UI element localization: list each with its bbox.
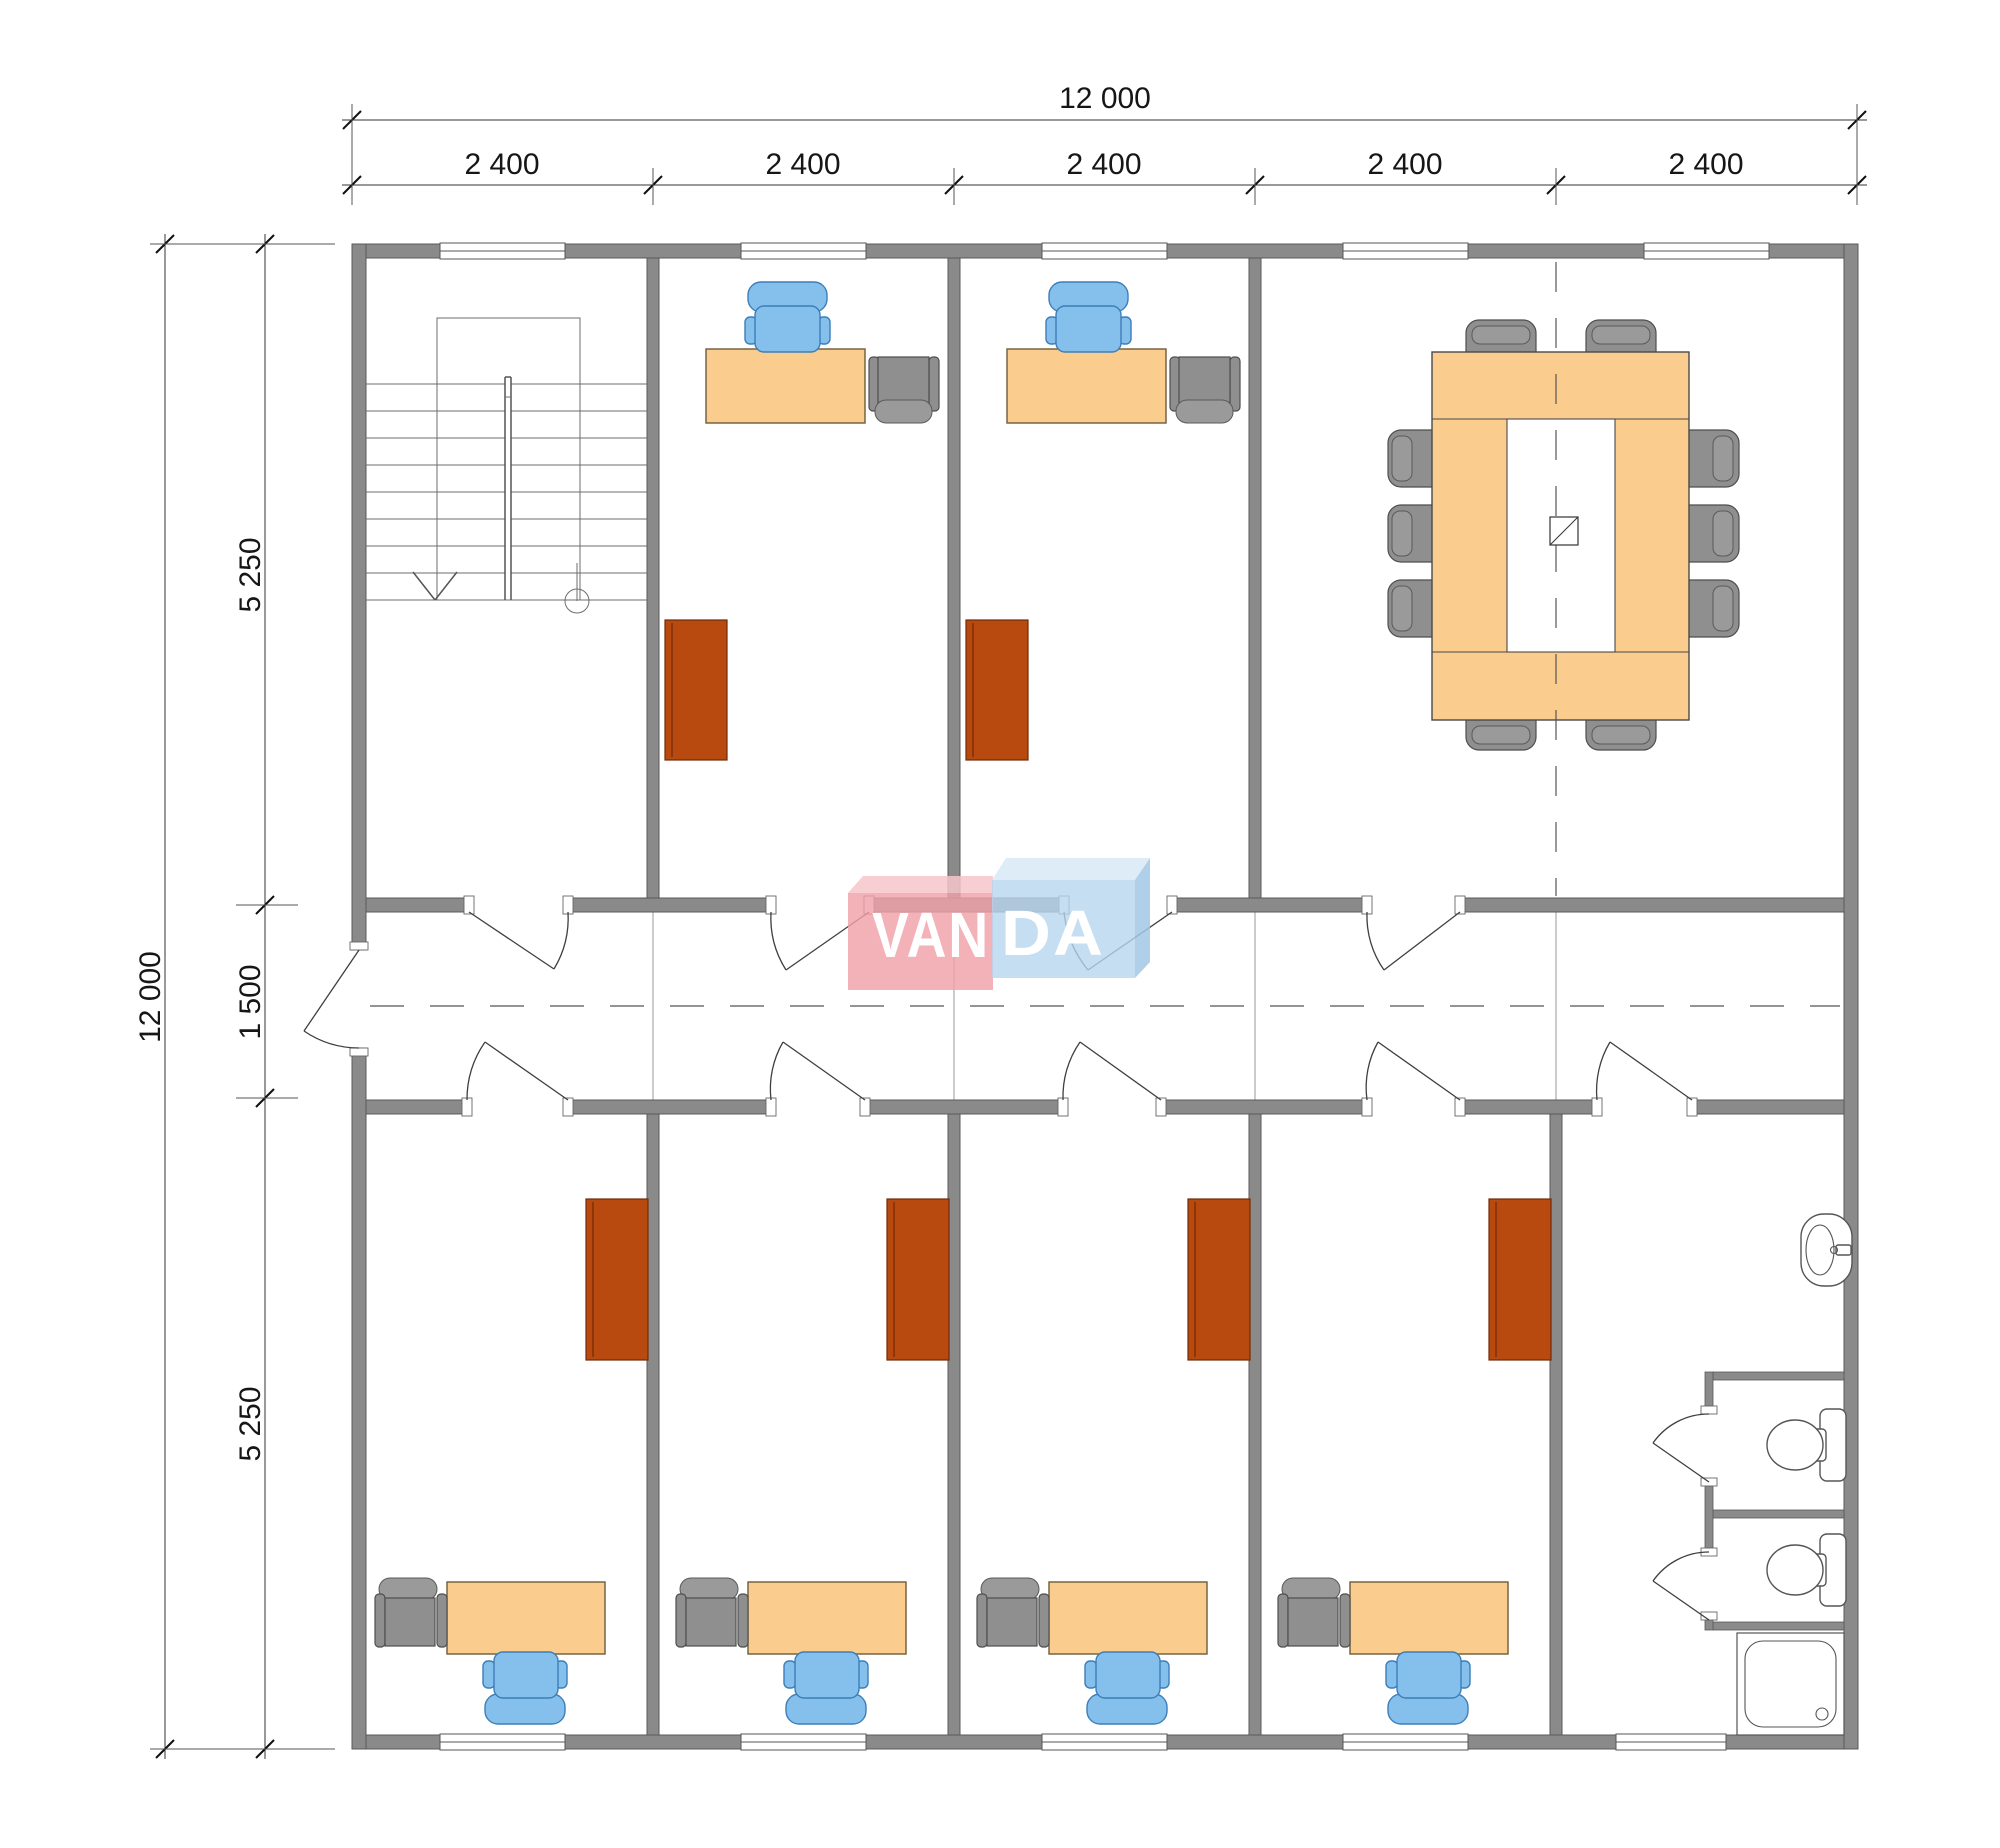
window xyxy=(440,1734,565,1750)
office-bottom-4 xyxy=(1278,1199,1551,1724)
guest-chair xyxy=(676,1578,748,1647)
desk-chair xyxy=(483,1652,567,1724)
wash-basin xyxy=(1801,1214,1852,1286)
stair-direction-arrow xyxy=(413,572,457,600)
meeting-room-door xyxy=(1362,896,1465,970)
staircase xyxy=(366,318,647,613)
window xyxy=(1644,243,1769,259)
desk-chair xyxy=(784,1652,868,1724)
guest-chair xyxy=(869,357,939,423)
guest-chair xyxy=(1278,1578,1350,1647)
desk-chair xyxy=(1085,1652,1169,1724)
stair-column-circle xyxy=(565,563,589,613)
entrance-door xyxy=(304,942,368,1056)
guest-chair xyxy=(977,1578,1049,1647)
office-top-2 xyxy=(966,282,1240,760)
dim-total-width-label: 12 000 xyxy=(1059,82,1151,115)
desk-chair xyxy=(1046,282,1131,352)
office-desk xyxy=(1007,349,1166,423)
cabinet xyxy=(1188,1199,1250,1360)
shower-tray xyxy=(1737,1633,1844,1735)
window xyxy=(1343,1734,1468,1750)
window xyxy=(1042,1734,1167,1750)
guest-chair xyxy=(1170,357,1240,423)
office-desk xyxy=(748,1582,906,1654)
guest-chair xyxy=(375,1578,447,1647)
dim-left-segment-label: 5 250 xyxy=(234,1386,267,1461)
window xyxy=(741,1734,866,1750)
office-bottom-3 xyxy=(977,1199,1250,1724)
office-desk xyxy=(706,349,865,423)
window xyxy=(440,243,565,259)
bathroom-door xyxy=(1592,1042,1697,1116)
stair-landing xyxy=(437,318,580,600)
office-door xyxy=(462,1042,573,1116)
dimension-left: 12 000 5 250 1 500 5 250 xyxy=(134,234,335,1759)
toilet xyxy=(1767,1409,1846,1481)
window xyxy=(1042,243,1167,259)
cabinet xyxy=(966,620,1028,760)
logo-text-da: DA xyxy=(1001,897,1105,969)
window xyxy=(741,243,866,259)
office-desk xyxy=(1350,1582,1508,1654)
cabinet xyxy=(586,1199,648,1360)
floor-plan-drawing: 12 000 2 400 2 400 2 400 2 400 2 400 12 … xyxy=(0,0,2000,1848)
dim-bay-label: 2 400 xyxy=(464,148,539,181)
floor-plan-page: 12 000 2 400 2 400 2 400 2 400 2 400 12 … xyxy=(0,0,2000,1848)
office-door xyxy=(1362,1042,1465,1116)
bathroom xyxy=(1653,1214,1852,1735)
dimension-top: 12 000 2 400 2 400 2 400 2 400 2 400 xyxy=(342,82,1867,205)
office-bottom-1 xyxy=(375,1199,648,1724)
cabinet xyxy=(1489,1199,1551,1360)
cabinet xyxy=(665,620,727,760)
dim-bay-label: 2 400 xyxy=(1066,148,1141,181)
dim-bay-label: 2 400 xyxy=(1668,148,1743,181)
stair-divider xyxy=(505,377,511,600)
office-bottom-2 xyxy=(676,1199,949,1724)
wc-stall-door xyxy=(1653,1552,1709,1620)
office-door xyxy=(1058,1042,1166,1116)
office-top-1 xyxy=(665,282,939,760)
toilet xyxy=(1767,1534,1846,1606)
meeting-room xyxy=(1388,262,1739,896)
stairwell-door xyxy=(464,896,573,969)
dim-total-height-label: 12 000 xyxy=(134,951,167,1043)
dim-bay-label: 2 400 xyxy=(765,148,840,181)
desk-chair xyxy=(1386,1652,1470,1724)
staircase-treads xyxy=(366,384,647,600)
dim-left-segment-label: 1 500 xyxy=(234,964,267,1039)
office-desk xyxy=(1049,1582,1207,1654)
dim-bay-label: 2 400 xyxy=(1367,148,1442,181)
dim-left-segment-label: 5 250 xyxy=(234,537,267,612)
column-symbol xyxy=(1550,517,1578,545)
desk-chair xyxy=(745,282,830,352)
wc-stall-door xyxy=(1653,1414,1709,1482)
vanda-logo: VAN DA xyxy=(848,858,1150,990)
window xyxy=(1616,1734,1726,1750)
window xyxy=(1343,243,1468,259)
logo-text-van: VAN xyxy=(872,899,990,971)
office-desk xyxy=(447,1582,605,1654)
office-door xyxy=(766,1042,870,1116)
cabinet xyxy=(887,1199,949,1360)
